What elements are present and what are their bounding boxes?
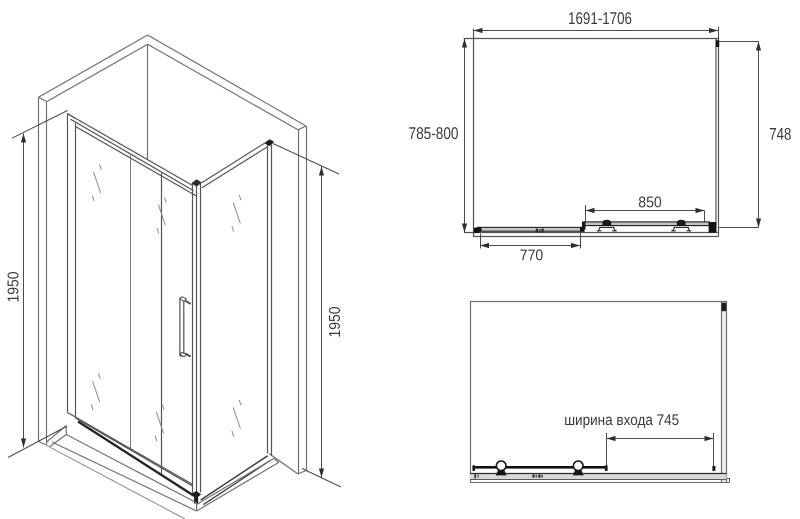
svg-text:785-800: 785-800 bbox=[408, 124, 458, 143]
svg-text:850: 850 bbox=[638, 194, 662, 211]
svg-text:748: 748 bbox=[769, 125, 791, 144]
svg-text:1950: 1950 bbox=[327, 306, 344, 337]
svg-text:ширина входа 745: ширина входа 745 bbox=[564, 412, 679, 429]
svg-text:1691-1706: 1691-1706 bbox=[568, 9, 632, 28]
svg-text:1950: 1950 bbox=[5, 271, 22, 302]
svg-text:770: 770 bbox=[520, 247, 544, 264]
